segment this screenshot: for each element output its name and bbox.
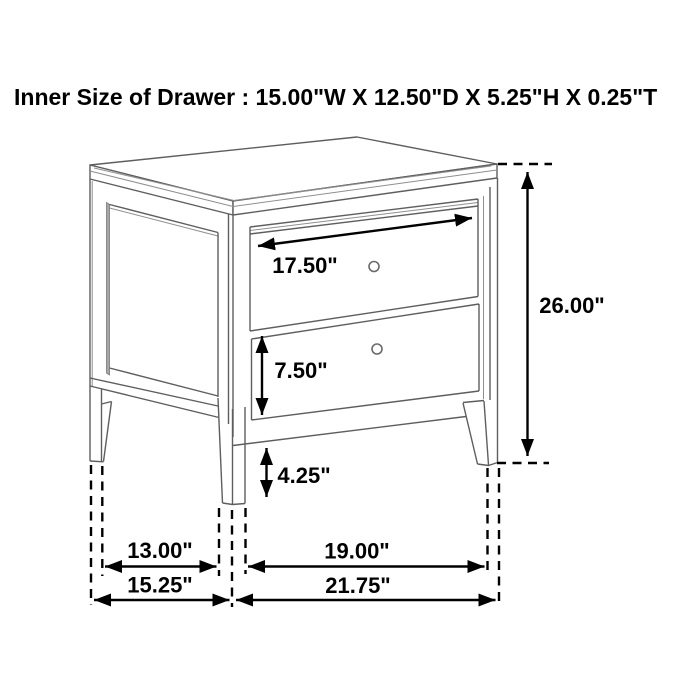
top-panel xyxy=(90,137,497,215)
top-drawer-knob xyxy=(369,262,379,272)
dimension-label-overall-height: 26.00" xyxy=(539,293,604,318)
dimension-annotations: 17.50" 7.50" 4.25" 26.00" xyxy=(91,164,605,607)
bottom-drawer-knob xyxy=(372,344,382,354)
furniture-dimension-diagram: Inner Size of Drawer : 15.00"W X 12.50"D… xyxy=(0,0,700,700)
dimension-label-overall-width: 21.75" xyxy=(325,573,390,598)
dimension-overall-width: 21.75" xyxy=(236,573,496,600)
diagram-canvas: Inner Size of Drawer : 15.00"W X 12.50"D… xyxy=(0,0,700,700)
dimension-label-overall-depth: 15.25" xyxy=(127,573,192,598)
front-right-leg xyxy=(463,401,498,466)
dimension-label-bottom-drawer-height: 7.50" xyxy=(274,358,327,383)
dimension-label-drawer-face-width: 17.50" xyxy=(272,253,337,278)
back-left-leg xyxy=(90,390,112,462)
dimension-bottom-drawer-height: 7.50" xyxy=(262,336,328,415)
dimension-label-leg-clearance: 4.25" xyxy=(277,463,330,488)
dimension-leg-clearance: 4.25" xyxy=(267,448,331,497)
dimension-inner-leg-width: 19.00" xyxy=(248,539,485,567)
bottom-rail xyxy=(233,417,466,446)
dimension-drawer-face-width: 17.50" xyxy=(258,218,472,278)
dimension-overall-height: 26.00" xyxy=(497,164,605,463)
dimension-label-inner-leg-depth: 13.00" xyxy=(127,538,192,563)
side-stile-shading xyxy=(107,203,110,376)
nightstand-drawing xyxy=(90,137,498,505)
front-left-leg xyxy=(218,398,245,505)
dimension-label-inner-leg-width: 19.00" xyxy=(324,539,389,564)
dimension-inner-leg-depth: 13.00" xyxy=(105,538,217,567)
diagram-title: Inner Size of Drawer : 15.00"W X 12.50"D… xyxy=(14,84,657,110)
dimension-overall-depth: 15.25" xyxy=(94,573,230,601)
